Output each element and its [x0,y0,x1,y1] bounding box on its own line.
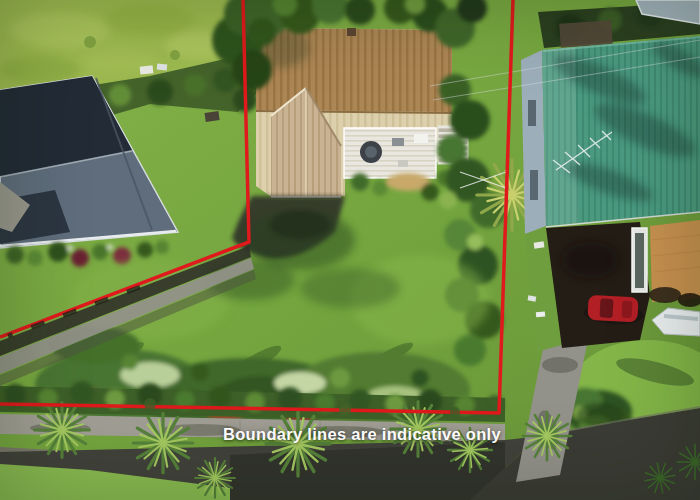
right-house [521,0,700,352]
boundary-disclaimer-text: Boundary lines are indicative only [223,425,501,444]
deck [344,128,436,178]
chimney [347,28,356,36]
aerial-photo: Boundary lines are indicative only [0,0,700,500]
glass-door-panel [632,228,647,292]
parked-vehicle [140,65,154,74]
right-house-wall [521,50,546,234]
